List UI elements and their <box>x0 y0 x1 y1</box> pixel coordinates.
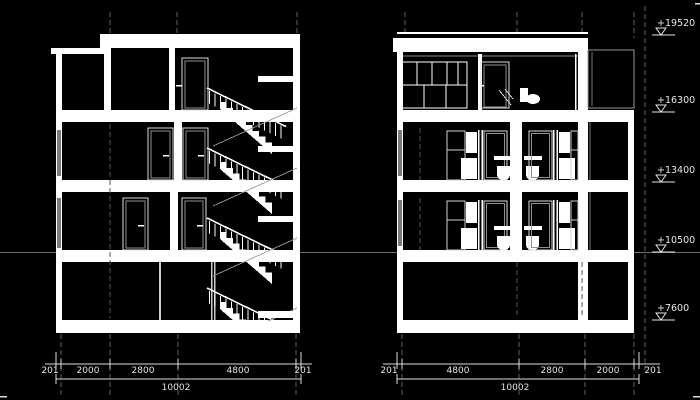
level-triangle-icon <box>656 105 666 112</box>
elevation-label: +7600 <box>657 303 689 314</box>
cad-drawing-canvas: 201 2000 2800 4800 201 10002 201 4800 28… <box>0 0 700 400</box>
floor-slab <box>397 180 634 192</box>
elevation-marker: +10500 <box>652 235 695 252</box>
door <box>182 58 208 110</box>
overall-dim-label: 10002 <box>162 383 191 393</box>
doors <box>123 58 208 250</box>
dim-label: 201 <box>380 366 397 376</box>
roof-slab <box>100 34 300 48</box>
balcony-wall <box>628 120 634 332</box>
interior-wall <box>169 48 175 110</box>
toilet <box>526 94 540 104</box>
dim-label: 4800 <box>227 366 250 376</box>
dimension-group-left: 201 2000 2800 4800 201 10002 <box>41 352 312 393</box>
dim-label: 2800 <box>132 366 155 376</box>
dim-label: 201 <box>294 366 311 376</box>
ground-slab <box>397 320 634 333</box>
interior-wall <box>174 122 182 180</box>
section-drawing: 201 2000 2800 4800 201 10002 201 4800 28… <box>0 0 700 400</box>
left-building-section <box>51 34 300 354</box>
dim-label: 201 <box>644 366 661 376</box>
elevation-label: +19520 <box>657 18 695 29</box>
door <box>123 198 148 250</box>
dim-label: 2000 <box>597 366 620 376</box>
door <box>183 128 208 180</box>
door <box>481 62 509 108</box>
elevation-label: +10500 <box>657 235 695 246</box>
dim-label: 4800 <box>447 366 470 376</box>
floor-slab <box>397 250 634 262</box>
door-handle <box>479 85 484 87</box>
parapet-line <box>397 32 588 34</box>
balcony-outline <box>588 50 634 108</box>
interior-wall <box>170 192 178 250</box>
elevation-marker: +16300 <box>652 95 695 112</box>
level-triangle-icon <box>656 313 666 320</box>
elevation-label: +16300 <box>657 95 695 106</box>
overall-dim-label: 10002 <box>501 383 530 393</box>
right-building-section <box>393 32 634 333</box>
elevation-marker: +7600 <box>652 303 689 320</box>
dimension-group-right: 201 4800 2800 2000 201 10002 <box>380 352 661 393</box>
dim-label: 2000 <box>77 366 100 376</box>
elevation-label: +13400 <box>657 165 695 176</box>
window-glazing <box>57 198 61 248</box>
window-glazing <box>57 130 61 176</box>
level-triangle-icon <box>656 175 666 182</box>
level-triangle-icon <box>656 28 666 35</box>
door <box>182 198 206 250</box>
floor-slab <box>397 110 634 122</box>
elevation-markers: +19520 +16300 +13400 +10500 +7600 <box>652 18 695 320</box>
interior-wall <box>104 48 111 110</box>
dim-label: 2800 <box>541 366 564 376</box>
roof-slab <box>393 38 588 52</box>
interior-partition <box>159 262 161 320</box>
door <box>148 128 173 180</box>
elevation-marker: +19520 <box>652 18 695 35</box>
interior-wall <box>575 54 577 110</box>
wardrobe-unit <box>402 62 467 108</box>
level-triangle-icon <box>656 245 666 252</box>
elevation-marker: +13400 <box>652 165 695 182</box>
ground-slab <box>56 320 300 333</box>
